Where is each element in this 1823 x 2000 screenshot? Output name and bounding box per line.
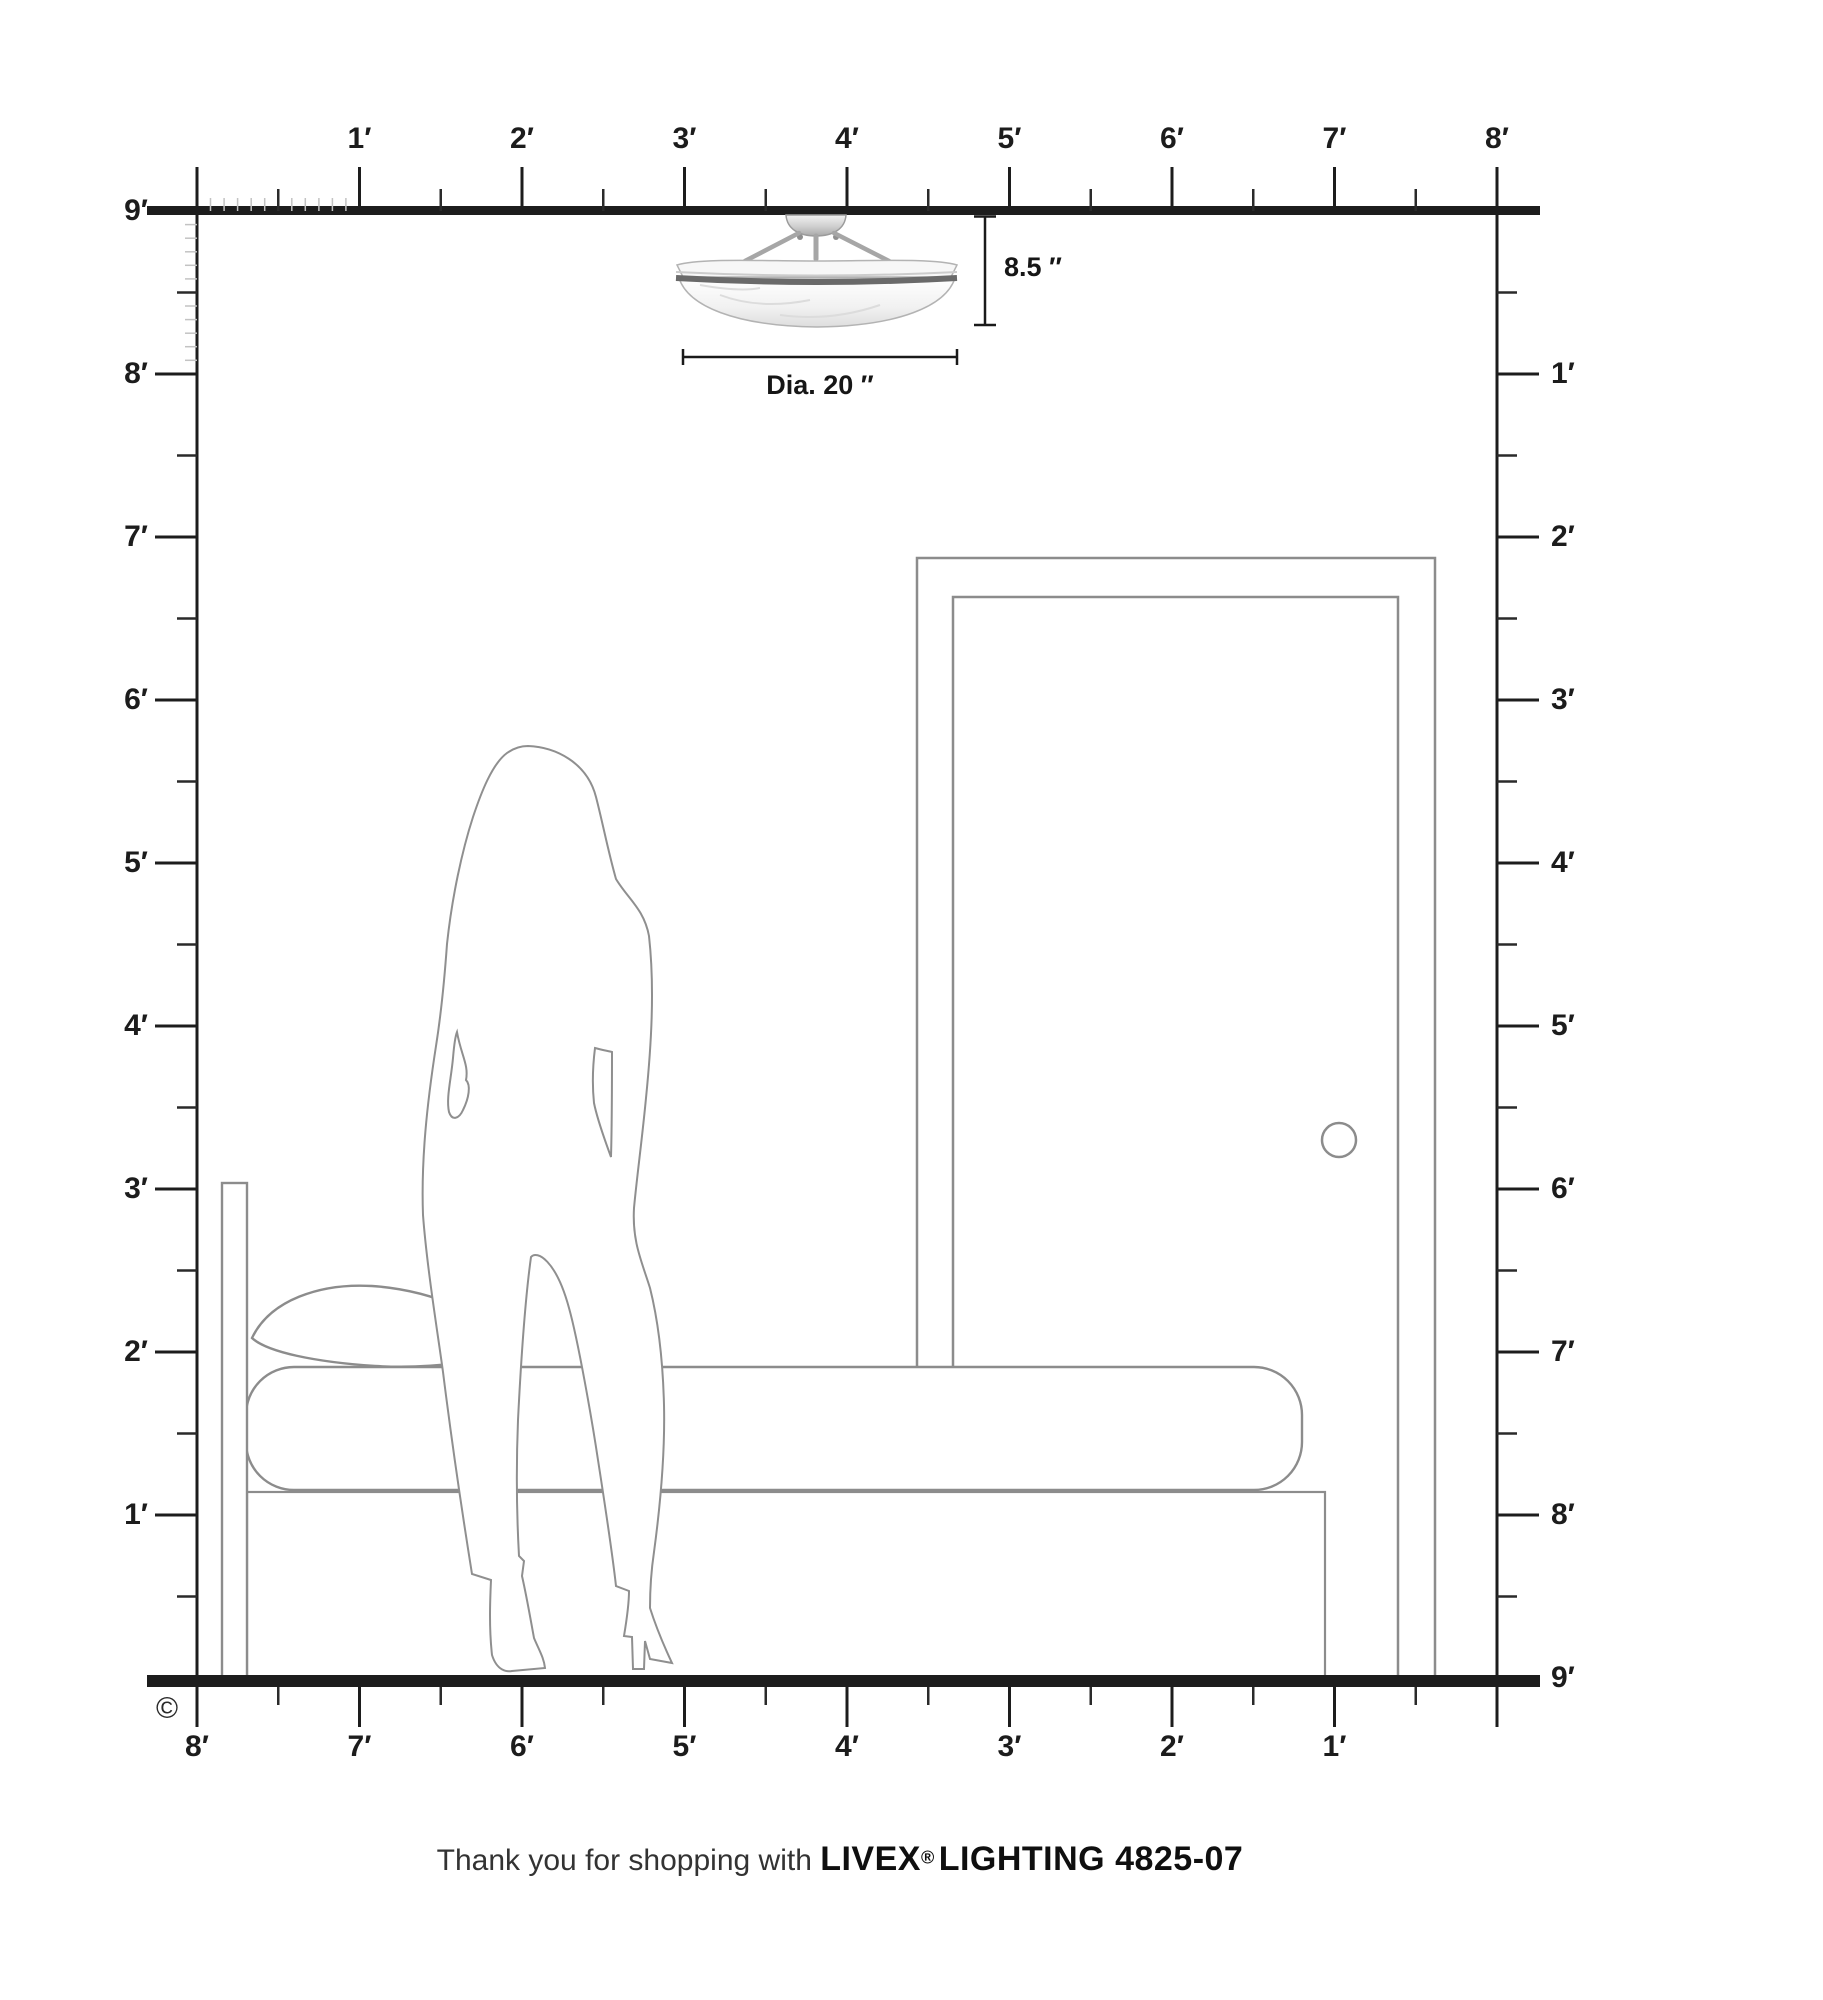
- headboard-post: [222, 1183, 247, 1678]
- door-knob: [1322, 1123, 1356, 1157]
- top-ruler-label-4ft: 4′: [812, 121, 882, 157]
- right-ruler-half-ticks: [1497, 293, 1517, 1597]
- right-ruler-label-7ft: 7′: [1551, 1334, 1621, 1370]
- top-ruler-label-5ft: 5′: [975, 121, 1045, 157]
- floor-line: [147, 1675, 1540, 1687]
- top-ruler-label-3ft: 3′: [650, 121, 720, 157]
- right-ruler-label-9ft: 9′: [1551, 1660, 1621, 1696]
- caption: Thank you for shopping with LIVEX® LIGHT…: [0, 1840, 1680, 1879]
- scale-diagram: 1′ 2′ 3′ 4′ 5′ 6′ 7′ 8′ 9′ 8′ 7′ 6′ 5′ 4…: [0, 0, 1823, 2000]
- bed-drawing: [222, 1183, 1325, 1678]
- left-ruler-label-8ft: 8′: [78, 356, 148, 392]
- caption-prefix: Thank you for shopping with: [437, 1844, 821, 1877]
- registered-trademark-icon: ®: [921, 1848, 934, 1868]
- bottom-ruler-label-4ft: 4′: [812, 1729, 882, 1765]
- caption-brand: LIVEX: [820, 1840, 921, 1878]
- ceiling-line: [147, 206, 1540, 215]
- right-ruler-label-3ft: 3′: [1551, 682, 1621, 718]
- left-ruler-ticks: [155, 211, 197, 1515]
- bottom-ruler-label-2ft: 2′: [1137, 1729, 1207, 1765]
- right-ruler-label-8ft: 8′: [1551, 1497, 1621, 1533]
- height-dimension-line: [974, 216, 996, 325]
- mattress: [246, 1367, 1302, 1490]
- top-ruler-label-8ft: 8′: [1462, 121, 1532, 157]
- left-ruler-label-6ft: 6′: [78, 682, 148, 718]
- caption-model: LIGHTING 4825-07: [939, 1840, 1244, 1878]
- fixture-diameter-label: Dia. 20 ″: [670, 370, 970, 401]
- fixture-glass-bowl: [679, 278, 955, 327]
- left-ruler-half-ticks: [177, 293, 197, 1597]
- fixture-rods: [745, 233, 889, 261]
- bottom-ruler-label-7ft: 7′: [325, 1729, 395, 1765]
- left-ruler-label-4ft: 4′: [78, 1008, 148, 1044]
- left-ruler-label-5ft: 5′: [78, 845, 148, 881]
- bottom-ruler-ticks: [360, 1687, 1335, 1727]
- right-ruler-label-2ft: 2′: [1551, 519, 1621, 555]
- right-ruler-ticks: [1497, 374, 1539, 1678]
- left-ruler-label-3ft: 3′: [78, 1171, 148, 1207]
- top-ruler-label-7ft: 7′: [1300, 121, 1370, 157]
- top-ruler-label-2ft: 2′: [487, 121, 557, 157]
- diagram-canvas: [0, 0, 1823, 2000]
- right-ruler-label-5ft: 5′: [1551, 1008, 1621, 1044]
- left-ruler-label-2ft: 2′: [78, 1334, 148, 1370]
- top-ruler-ticks: [360, 167, 1335, 211]
- left-ruler-label-1ft: 1′: [78, 1497, 148, 1533]
- bottom-ruler-label-3ft: 3′: [975, 1729, 1045, 1765]
- right-ruler-label-6ft: 6′: [1551, 1171, 1621, 1207]
- diameter-dimension-line: [683, 349, 957, 365]
- bottom-ruler-label-6ft: 6′: [487, 1729, 557, 1765]
- left-ruler-label-9ft: 9′: [78, 193, 148, 229]
- bed-base: [247, 1492, 1325, 1678]
- ceiling-light-fixture: [676, 215, 957, 327]
- left-ruler-label-7ft: 7′: [78, 519, 148, 555]
- bottom-ruler-label-1ft: 1′: [1300, 1729, 1370, 1765]
- copyright-symbol: ©: [156, 1692, 178, 1726]
- right-ruler-label-1ft: 1′: [1551, 356, 1621, 392]
- bottom-ruler-label-8ft: 8′: [162, 1729, 232, 1765]
- fixture-height-label: 8.5 ″: [1004, 252, 1062, 283]
- top-ruler-label-1ft: 1′: [325, 121, 395, 157]
- top-ruler-label-6ft: 6′: [1137, 121, 1207, 157]
- right-ruler-label-4ft: 4′: [1551, 845, 1621, 881]
- bottom-ruler-label-5ft: 5′: [650, 1729, 720, 1765]
